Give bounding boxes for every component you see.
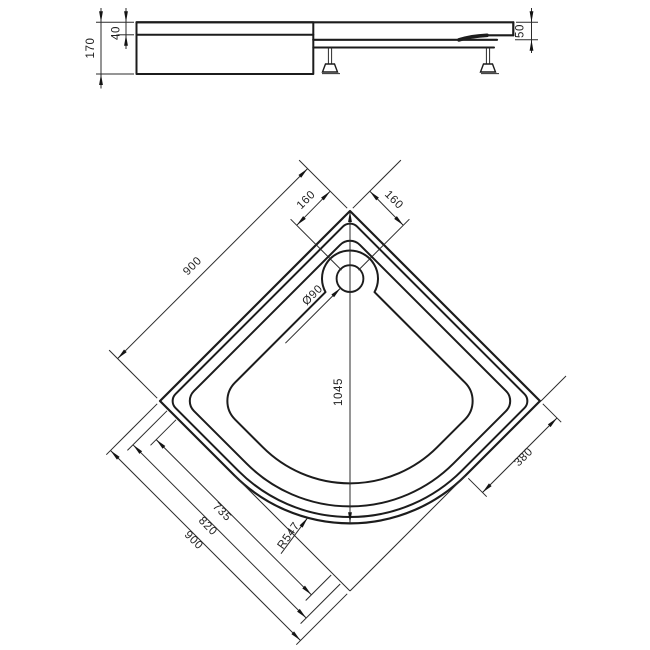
dimension-arrow <box>530 11 534 22</box>
dimension-arrow <box>155 438 165 448</box>
adjustable-leg-right <box>481 48 500 74</box>
dim-label-center-1045: 1045 <box>333 378 345 406</box>
shower-tray-drawing: 170 40 50 <box>0 0 650 650</box>
dimension-arrow <box>109 449 119 459</box>
extension-line <box>541 376 566 401</box>
dimension-arrow <box>481 483 491 493</box>
dim-label-rim-40: 40 <box>111 26 123 40</box>
dimension-arrow <box>368 190 378 200</box>
dimension-arrow <box>298 167 308 177</box>
dimension-arrow <box>99 11 103 22</box>
dim-label-edge-50: 50 <box>515 24 527 38</box>
plan-view: 160 160 900 1045 Ø90 380 735 820 900 R54… <box>106 160 566 645</box>
dimension-line-900-left <box>118 169 308 359</box>
dimension-arrow <box>124 11 128 22</box>
dimension-line-735 <box>156 440 311 595</box>
dimension-arrow <box>124 35 128 46</box>
dim-label-height-170: 170 <box>85 38 97 59</box>
dimension-arrow <box>394 216 404 226</box>
dimension-arrow <box>331 287 341 297</box>
dimension-line-900-bottom <box>111 451 301 641</box>
dimension-arrow <box>132 443 142 453</box>
extension-line <box>296 594 347 645</box>
extension-line <box>468 478 486 496</box>
extension-line <box>109 350 157 398</box>
leg-foot <box>323 64 338 72</box>
side-elevation-view: 170 40 50 <box>85 8 538 89</box>
dim-label-radius-r547: R547 <box>276 520 303 551</box>
dim-label-width-900: 900 <box>182 529 205 552</box>
dim-label-width-735: 735 <box>210 501 233 524</box>
dimension-arrow <box>548 417 558 427</box>
adjustable-leg-left <box>322 48 340 74</box>
dimension-arrow <box>116 349 126 359</box>
dimension-arrow <box>530 40 534 51</box>
dimension-line-820 <box>133 445 306 618</box>
leg-foot <box>481 64 496 72</box>
dimension-arrow <box>302 586 312 596</box>
dim-label-offset-left-160: 160 <box>295 189 318 212</box>
square-corner-line-right <box>350 476 466 592</box>
extension-line <box>106 404 157 455</box>
dimension-arrow <box>99 74 103 85</box>
dim-label-width-820: 820 <box>196 515 219 538</box>
dim-label-offset-right-160: 160 <box>382 189 405 212</box>
dim-label-edge-380: 380 <box>512 446 535 469</box>
dimension-arrow <box>295 216 305 226</box>
dimension-arrow <box>321 190 331 200</box>
dimension-arrowheads <box>99 11 558 642</box>
dimension-arrow <box>291 631 301 641</box>
dimension-arrow <box>297 609 307 619</box>
front-panel-outline <box>137 22 314 74</box>
extension-line <box>543 404 561 422</box>
dim-label-side-900: 900 <box>181 255 204 278</box>
technical-drawing-page: 170 40 50 <box>0 0 650 650</box>
